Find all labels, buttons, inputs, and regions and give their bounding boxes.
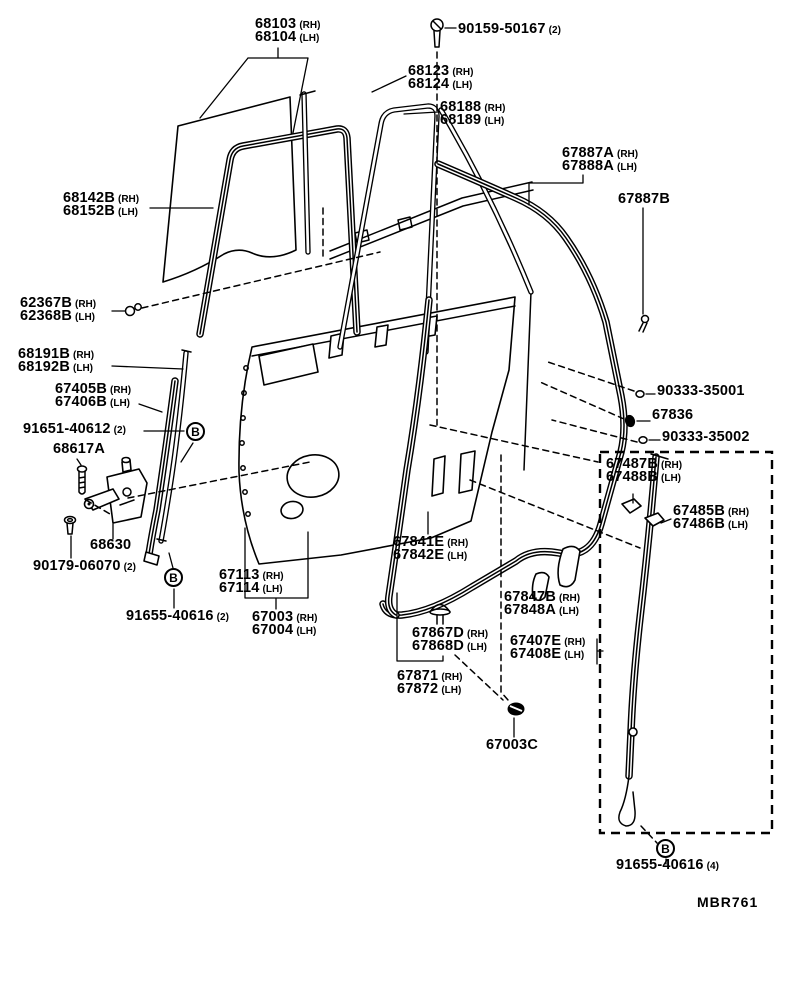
part-side-suffix: (LH) [263, 584, 283, 595]
grommet-icon-67003C [508, 703, 525, 716]
part-label-row: 67488B(LH) [606, 470, 682, 483]
part-label-row: 67848A(LH) [504, 603, 580, 616]
part-side-suffix: (LH) [559, 606, 579, 617]
part-number: 68124 [408, 76, 449, 92]
part-label-row: 67888A(LH) [562, 159, 638, 172]
part-label-68191B-68192B: 68191B(RH)68192B(LH) [18, 347, 94, 373]
part-label-row: 91655-40616(2) [126, 609, 229, 622]
part-label-row: 62368B(LH) [20, 309, 96, 322]
part-number: 67004 [252, 622, 293, 638]
part-number: 90179-06070 [33, 558, 121, 574]
part-label-row: 67872(LH) [397, 682, 462, 695]
part-side-suffix: (LH) [110, 398, 130, 409]
part-label-row: 90159-50167(2) [458, 22, 561, 35]
bolt-icon-90179 [65, 517, 76, 535]
part-side-suffix: (2) [124, 562, 136, 573]
part-label-row: 67408E(LH) [510, 647, 585, 660]
fastener-marker: B [656, 839, 675, 858]
door-glass [163, 97, 296, 282]
part-number: 67003C [486, 737, 538, 753]
fastener-marker: B [164, 568, 183, 587]
part-side-suffix: (2) [549, 25, 561, 36]
part-label-row: 67868D(LH) [412, 639, 488, 652]
part-number: 91651-40612 [23, 421, 111, 437]
part-number: 68192B [18, 359, 70, 375]
part-label-90159-50167: 90159-50167(2) [458, 22, 561, 35]
door-inner-panel [239, 297, 515, 564]
clip-icon-90333-35002 [639, 437, 647, 443]
bolt-icon-68617 [78, 466, 87, 494]
part-label-row: 91655-40616(4) [616, 858, 719, 871]
part-side-suffix: (LH) [441, 685, 461, 696]
part-side-suffix: (LH) [296, 626, 316, 637]
part-number: 68189 [440, 112, 481, 128]
diagram-line-art [0, 0, 792, 982]
part-label-row: 90179-06070(2) [33, 559, 136, 572]
part-number: 67488B [606, 469, 658, 485]
part-number: 67408E [510, 646, 561, 662]
part-label-67871-67872: 67871(RH)67872(LH) [397, 669, 462, 695]
part-label-91655-40616-2: 91655-40616(2) [126, 609, 229, 622]
front-sash [300, 91, 315, 252]
part-number: 67887B [618, 191, 670, 207]
part-label-67847B-67848A: 67847B(RH)67848A(LH) [504, 590, 580, 616]
part-number: 67836 [652, 407, 693, 423]
part-label-67003C: 67003C [486, 738, 541, 751]
part-label-67887B: 67887B [618, 192, 673, 205]
part-label-row: 68617A [53, 442, 108, 455]
part-side-suffix: (LH) [299, 33, 319, 44]
part-side-suffix: (4) [707, 861, 719, 872]
part-number: 67868D [412, 638, 464, 654]
part-side-suffix: (LH) [728, 520, 748, 531]
part-number: 90333-35001 [657, 383, 745, 399]
part-side-suffix: (LH) [118, 207, 138, 218]
part-label-row: 68124(LH) [408, 77, 473, 90]
part-label-row: 68192B(LH) [18, 360, 94, 373]
part-label-row: 91651-40612(2) [23, 422, 126, 435]
pin-icon-67887B [639, 316, 649, 333]
part-side-suffix: (LH) [73, 363, 93, 374]
part-side-suffix: (2) [114, 425, 126, 436]
part-side-suffix: (2) [217, 612, 229, 623]
fastener-marker: B [186, 422, 205, 441]
part-label-68188-68189: 68188(RH)68189(LH) [440, 100, 505, 126]
part-label-91655-40616-4: 91655-40616(4) [616, 858, 719, 871]
part-label-90333-35002: 90333-35002 [662, 430, 753, 443]
part-side-suffix: (LH) [447, 551, 467, 562]
part-label-67867D-67868D: 67867D(RH)67868D(LH) [412, 626, 488, 652]
part-side-suffix: (LH) [661, 473, 681, 484]
part-number: 91655-40616 [616, 857, 704, 873]
clip-icon-90333-35001 [636, 391, 644, 397]
part-label-row: 68152B(LH) [63, 204, 139, 217]
part-label-row: 67114(LH) [219, 581, 284, 594]
part-number: 91655-40616 [126, 608, 214, 624]
part-label-row: 67406B(LH) [55, 395, 131, 408]
part-label-67113-67114: 67113(RH)67114(LH) [219, 568, 284, 594]
part-label-row: 68630 [90, 538, 134, 551]
part-label-62367B-62368B: 62367B(RH)62368B(LH) [20, 296, 96, 322]
part-side-suffix: (LH) [564, 650, 584, 661]
part-label-row: 67887B [618, 192, 673, 205]
part-label-90179-06070: 90179-06070(2) [33, 559, 136, 572]
part-label-90333-35001: 90333-35001 [657, 384, 748, 397]
part-label-68103-68104: 68103(RH)68104(LH) [255, 17, 320, 43]
part-label-67405B-67406B: 67405B(RH)67406B(LH) [55, 382, 131, 408]
part-label-67487B-67488B: 67487B(RH)67488B(LH) [606, 457, 682, 483]
part-label-row: 90333-35002 [662, 430, 753, 443]
part-number: 68617A [53, 441, 105, 457]
part-label-67407E-67408E: 67407E(RH)67408E(LH) [510, 634, 585, 660]
part-number: 68630 [90, 537, 131, 553]
part-label-row: 67836 [652, 408, 696, 421]
part-label-67485B-67486B: 67485B(RH)67486B(LH) [673, 504, 749, 530]
part-label-68142B-68152B: 68142B(RH)68152B(LH) [63, 191, 139, 217]
part-label-67841E-67842E: 67841E(RH)67842E(LH) [393, 535, 468, 561]
door-check-icon [85, 458, 148, 524]
part-label-67003-67004: 67003(RH)67004(LH) [252, 610, 317, 636]
part-side-suffix: (LH) [467, 642, 487, 653]
part-label-68617A: 68617A [53, 442, 108, 455]
part-label-row: 68189(LH) [440, 113, 505, 126]
clip-icons-67485 [622, 499, 664, 526]
part-label-91651-40612: 91651-40612(2) [23, 422, 126, 435]
part-number: 68104 [255, 29, 296, 45]
part-label-row: 67486B(LH) [673, 517, 749, 530]
part-number: 67872 [397, 681, 438, 697]
screw-icon [431, 19, 443, 47]
part-number: 67406B [55, 394, 107, 410]
part-number: 67486B [673, 516, 725, 532]
part-number: 67114 [219, 580, 260, 596]
part-label-row: 67842E(LH) [393, 548, 468, 561]
part-label-67887A-67888A: 67887A(RH)67888A(LH) [562, 146, 638, 172]
part-label-67836: 67836 [652, 408, 696, 421]
part-label-68630: 68630 [90, 538, 134, 551]
part-label-row: 68104(LH) [255, 30, 320, 43]
part-side-suffix: (LH) [484, 116, 504, 127]
clip-icon-62367 [126, 304, 142, 316]
part-number: 68152B [63, 203, 115, 219]
part-side-suffix: (LH) [75, 312, 95, 323]
part-number: 67848A [504, 602, 556, 618]
part-label-row: 67003C [486, 738, 541, 751]
part-number: 90159-50167 [458, 21, 546, 37]
part-label-68123-68124: 68123(RH)68124(LH) [408, 64, 473, 90]
part-side-suffix: (LH) [617, 162, 637, 173]
part-label-row: 67004(LH) [252, 623, 317, 636]
parts-diagram: MBR761 68103(RH)68104(LH)90159-50167(2)6… [0, 0, 792, 982]
part-label-row: 90333-35001 [657, 384, 748, 397]
part-number: 90333-35002 [662, 429, 750, 445]
part-number: 62368B [20, 308, 72, 324]
part-number: 67888A [562, 158, 614, 174]
figure-code: MBR761 [697, 894, 758, 910]
part-side-suffix: (LH) [452, 80, 472, 91]
part-number: 67842E [393, 547, 444, 563]
